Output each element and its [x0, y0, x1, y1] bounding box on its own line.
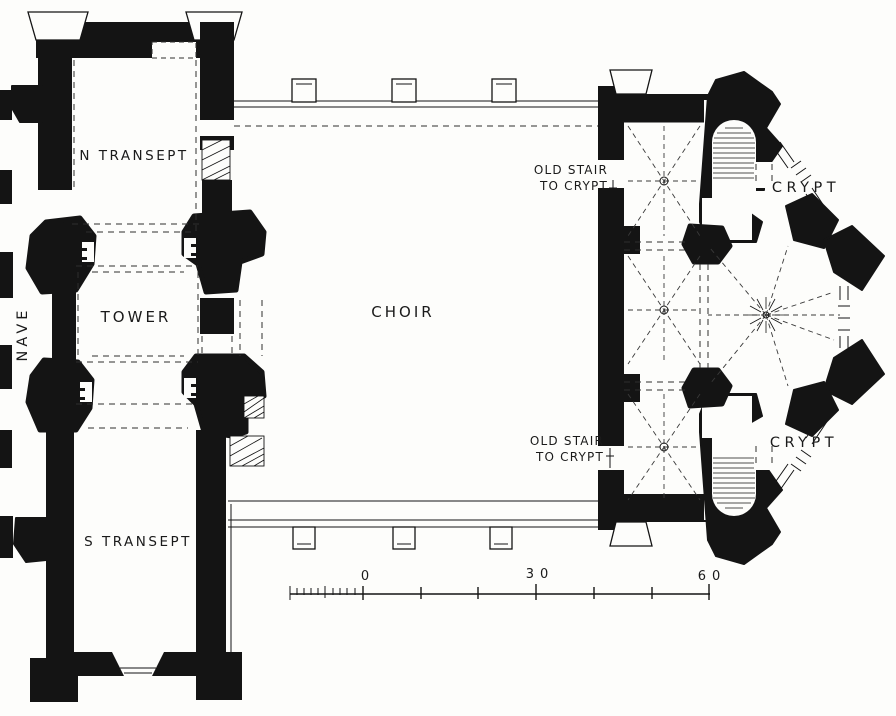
- east-arm-north-buttress: [610, 70, 652, 94]
- nave-wall-stubs: [0, 90, 13, 558]
- ne-chapel-window: [791, 161, 811, 182]
- label-north-transept: N TRANSEPT: [79, 148, 188, 164]
- se-chapel-window: [791, 450, 811, 471]
- tower-walls: [52, 292, 234, 364]
- label-crypt-north: CRYPT: [772, 180, 840, 196]
- n-transept-west-wall: [38, 40, 72, 190]
- plan-svg: NAVE N TRANSEPT TOWER S TRANSEPT CHOIR O…: [0, 0, 896, 716]
- old-stair-south-line2: TO CRYPT: [535, 450, 604, 464]
- n-transept-nw-buttress: [28, 12, 88, 40]
- label-south-transept: S TRANSEPT: [84, 534, 192, 550]
- apse-chord-pier-south: [684, 370, 730, 406]
- se-stair-turret: [700, 394, 782, 564]
- apse-chord-pier-north: [684, 226, 730, 262]
- old-stair-north-line1: OLD STAIR: [534, 163, 608, 177]
- tower-east-wall-upper: [200, 298, 234, 334]
- s-transept-west-wall: [46, 430, 74, 658]
- east-arm-north-wall: [624, 94, 708, 122]
- n-transept-west-buttress: [12, 86, 42, 122]
- label-tower: TOWER: [100, 308, 172, 326]
- s-transept-se-buttress: [196, 652, 242, 700]
- apse-buttress-ne-outer: [824, 226, 884, 290]
- old-stair-south-line1: OLD STAIR: [530, 434, 604, 448]
- label-nave: NAVE: [15, 307, 31, 362]
- ne-spiral-stair-well: [712, 120, 756, 198]
- scale-label-60: 60: [698, 569, 727, 584]
- tower-west-wall: [52, 292, 76, 362]
- apse-east-window: [838, 306, 850, 330]
- apse-buttress-se-outer: [824, 340, 884, 404]
- east-arm: [598, 70, 884, 564]
- ne-stair-turret: [700, 72, 782, 242]
- south-transept-walls: [14, 430, 242, 702]
- label-old-stair-south: OLD STAIR TO CRYPT: [530, 434, 614, 468]
- n-transept-east-wall-upper: [200, 22, 234, 120]
- scale-bar-major-ticks: [363, 584, 709, 600]
- scale-label-0: 0: [361, 569, 369, 584]
- se-spiral-stair-well: [712, 438, 756, 516]
- east-arm-south-wall: [624, 494, 708, 522]
- old-stair-north-line2: TO CRYPT: [539, 179, 608, 193]
- wall-respond-south: [624, 374, 640, 402]
- tower-east-wall-lower: [200, 354, 234, 364]
- label-crypt-south: CRYPT: [770, 435, 838, 451]
- choir-north-wall: [234, 79, 598, 126]
- scale-bar-fine-ticks: [290, 586, 355, 600]
- s-transept-east-wall: [196, 430, 226, 658]
- church-floor-plan: NAVE N TRANSEPT TOWER S TRANSEPT CHOIR O…: [0, 0, 896, 716]
- s-transept-sw-buttress: [30, 658, 78, 702]
- n-transept-hatched-wall: [202, 140, 230, 180]
- apse-vault-ribs: [708, 246, 840, 386]
- scale-bar: 0 30 60: [290, 567, 726, 600]
- north-transept-walls: [12, 12, 242, 222]
- n-transept-recess: [152, 42, 196, 58]
- scale-label-30: 30: [526, 567, 555, 582]
- s-transept-west-buttress: [14, 518, 46, 562]
- label-choir: CHOIR: [371, 303, 434, 321]
- east-arm-south-buttress: [610, 522, 652, 546]
